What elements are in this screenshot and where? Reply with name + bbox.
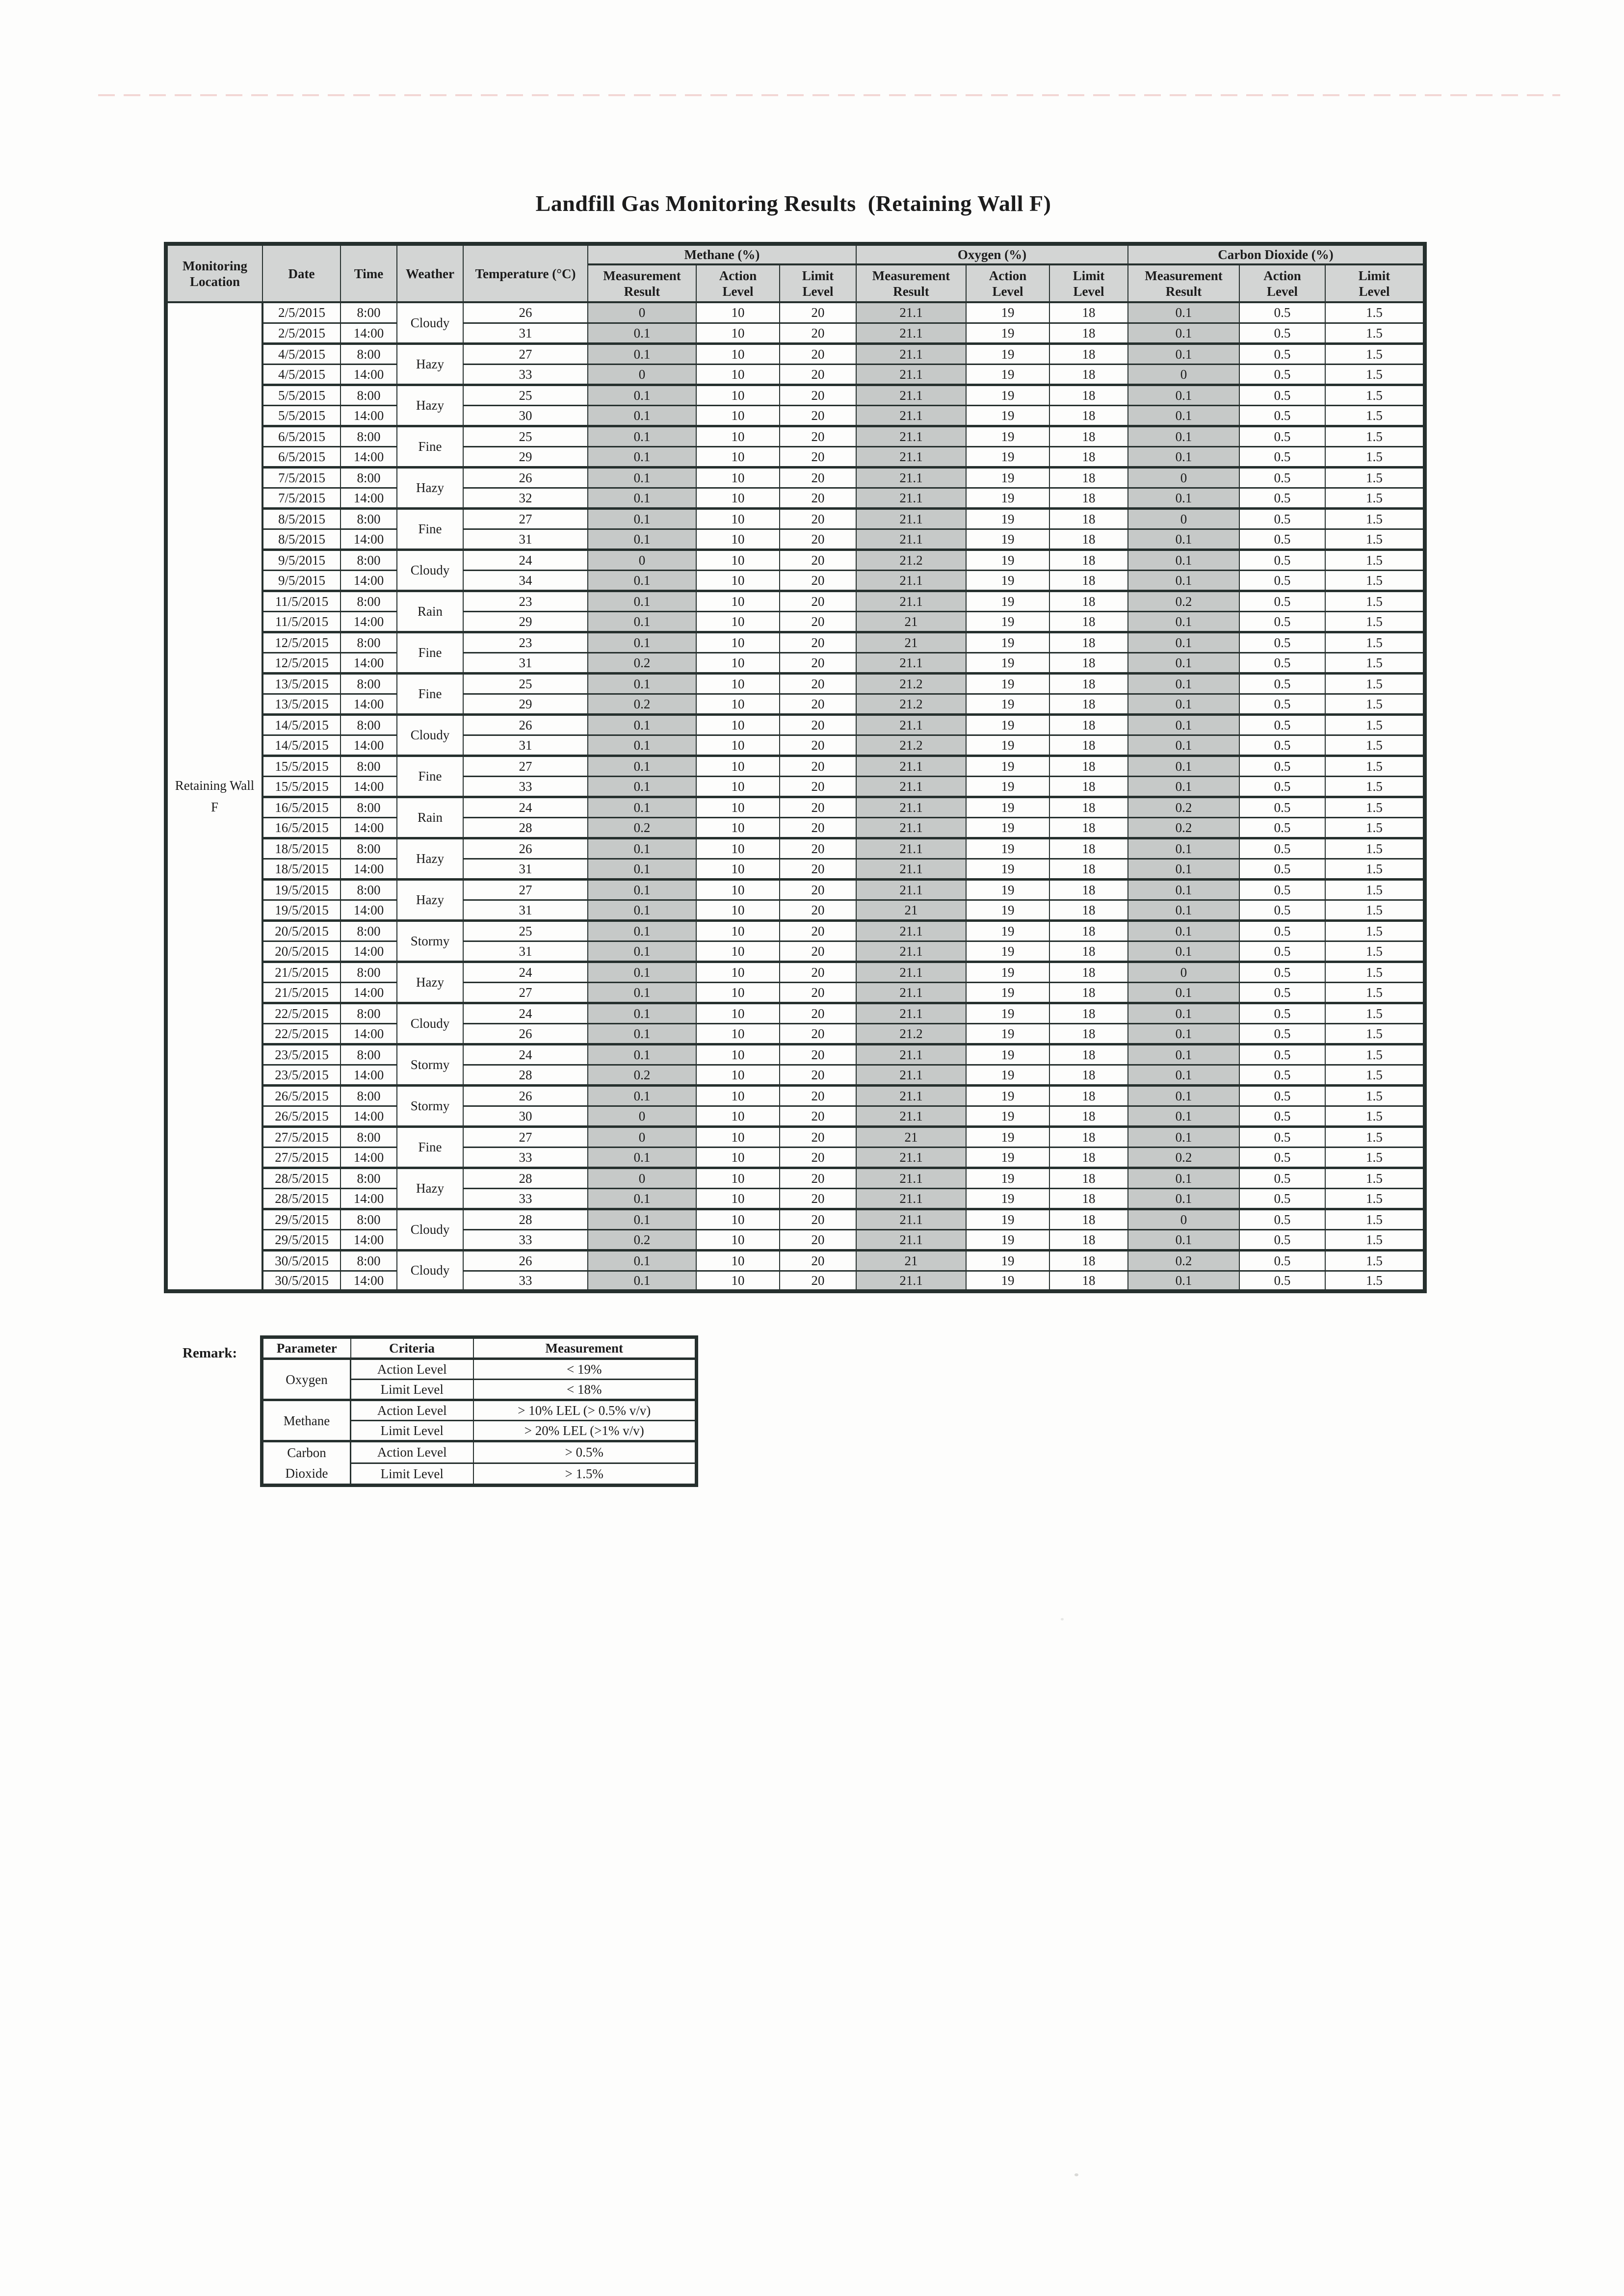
co2-action-cell: 0.5 [1239,529,1325,549]
methane-limit-cell: 20 [780,1044,856,1065]
co2-action-cell: 0.5 [1239,467,1325,488]
oxygen-limit-cell: 18 [1049,982,1128,1003]
methane-measurement-cell: 0 [588,1126,696,1147]
co2-action-cell: 0.5 [1239,694,1325,714]
temperature-cell: 27 [463,508,588,529]
temperature-cell: 23 [463,591,588,611]
temperature-cell: 31 [463,529,588,549]
date-cell: 9/5/2015 [262,549,341,570]
oxygen-action-cell: 19 [966,900,1049,920]
methane-action-cell: 10 [696,570,780,591]
table-row: 29/5/20158:00Cloudy280.1102021.1191800.5… [166,1209,1425,1229]
date-cell: 7/5/2015 [262,467,341,488]
oxygen-action-cell: 19 [966,1209,1049,1229]
weather-cell: Fine [397,756,463,797]
methane-measurement-cell: 0.1 [588,982,696,1003]
date-cell: 20/5/2015 [262,941,341,962]
temperature-cell: 24 [463,549,588,570]
co2-measurement-cell: 0.1 [1128,920,1239,941]
methane-action-cell: 10 [696,838,780,859]
co2-limit-cell: 1.5 [1325,900,1425,920]
oxygen-action-cell: 19 [966,735,1049,756]
table-row: 26/5/201514:00300102021.119180.10.51.5 [166,1106,1425,1126]
table-row: 30/5/201514:00330.1102021.119180.10.51.5 [166,1271,1425,1291]
co2-measurement-cell: 0.1 [1128,1168,1239,1188]
temperature-cell: 27 [463,1126,588,1147]
col-header-co2-limit: Limit Level [1325,264,1425,302]
methane-limit-cell: 20 [780,900,856,920]
methane-measurement-cell: 0 [588,1106,696,1126]
oxygen-limit-cell: 18 [1049,838,1128,859]
temperature-cell: 33 [463,1188,588,1209]
oxygen-limit-cell: 18 [1049,549,1128,570]
co2-limit-cell: 1.5 [1325,1023,1425,1044]
oxygen-limit-cell: 18 [1049,1147,1128,1168]
methane-action-cell: 10 [696,467,780,488]
co2-limit-cell: 1.5 [1325,1085,1425,1106]
methane-limit-cell: 20 [780,1085,856,1106]
oxygen-measurement-cell: 21.1 [856,591,966,611]
temperature-cell: 25 [463,426,588,446]
oxygen-action-cell: 19 [966,838,1049,859]
co2-measurement-cell: 0 [1128,467,1239,488]
oxygen-action-cell: 19 [966,446,1049,467]
date-cell: 8/5/2015 [262,508,341,529]
date-cell: 22/5/2015 [262,1023,341,1044]
methane-limit-cell: 20 [780,797,856,817]
oxygen-measurement-cell: 21.1 [856,446,966,467]
co2-measurement-cell: 0.2 [1128,591,1239,611]
time-cell: 8:00 [341,508,397,529]
co2-limit-cell: 1.5 [1325,735,1425,756]
methane-limit-cell: 20 [780,859,856,879]
methane-limit-cell: 20 [780,1106,856,1126]
table-row: 15/5/201514:00330.1102021.119180.10.51.5 [166,776,1425,797]
co2-limit-cell: 1.5 [1325,838,1425,859]
oxygen-action-cell: 19 [966,694,1049,714]
time-cell: 8:00 [341,632,397,652]
co2-limit-cell: 1.5 [1325,343,1425,364]
methane-limit-cell: 20 [780,467,856,488]
methane-limit-cell: 20 [780,652,856,673]
remark-measurement: > 1.5% [473,1463,697,1486]
oxygen-measurement-cell: 21.1 [856,879,966,900]
methane-action-cell: 10 [696,1023,780,1044]
methane-measurement-cell: 0.1 [588,714,696,735]
oxygen-action-cell: 19 [966,714,1049,735]
oxygen-limit-cell: 18 [1049,735,1128,756]
time-cell: 14:00 [341,446,397,467]
methane-action-cell: 10 [696,1044,780,1065]
time-cell: 14:00 [341,1271,397,1291]
temperature-cell: 24 [463,962,588,982]
methane-action-cell: 10 [696,1106,780,1126]
methane-limit-cell: 20 [780,694,856,714]
co2-limit-cell: 1.5 [1325,1188,1425,1209]
methane-measurement-cell: 0.1 [588,570,696,591]
oxygen-measurement-cell: 21.1 [856,652,966,673]
time-cell: 8:00 [341,343,397,364]
co2-measurement-cell: 0.1 [1128,570,1239,591]
methane-action-cell: 10 [696,900,780,920]
temperature-cell: 33 [463,364,588,385]
temperature-cell: 27 [463,756,588,776]
methane-measurement-cell: 0.1 [588,1271,696,1291]
weather-cell: Hazy [397,467,463,508]
date-cell: 7/5/2015 [262,488,341,508]
oxygen-measurement-cell: 21.1 [856,1106,966,1126]
co2-action-cell: 0.5 [1239,488,1325,508]
methane-measurement-cell: 0.1 [588,405,696,426]
oxygen-measurement-cell: 21.1 [856,570,966,591]
date-cell: 9/5/2015 [262,570,341,591]
table-row: 16/5/201514:00280.2102021.119180.20.51.5 [166,817,1425,838]
oxygen-measurement-cell: 21.1 [856,467,966,488]
table-row: 18/5/201514:00310.1102021.119180.10.51.5 [166,859,1425,879]
table-row: 4/5/201514:00330102021.1191800.51.5 [166,364,1425,385]
methane-limit-cell: 20 [780,941,856,962]
methane-action-cell: 10 [696,817,780,838]
oxygen-limit-cell: 18 [1049,1065,1128,1085]
oxygen-measurement-cell: 21 [856,1126,966,1147]
methane-measurement-cell: 0.1 [588,941,696,962]
table-row: 16/5/20158:00Rain240.1102021.119180.20.5… [166,797,1425,817]
table-row: 22/5/20158:00Cloudy240.1102021.119180.10… [166,1003,1425,1023]
table-row: 15/5/20158:00Fine270.1102021.119180.10.5… [166,756,1425,776]
oxygen-limit-cell: 18 [1049,1126,1128,1147]
co2-action-cell: 0.5 [1239,652,1325,673]
co2-measurement-cell: 0.1 [1128,1126,1239,1147]
oxygen-action-cell: 19 [966,673,1049,694]
co2-action-cell: 0.5 [1239,756,1325,776]
remark-measurement: > 10% LEL (> 0.5% v/v) [473,1400,697,1421]
methane-measurement-cell: 0.1 [588,446,696,467]
date-cell: 19/5/2015 [262,879,341,900]
time-cell: 14:00 [341,1147,397,1168]
weather-cell: Cloudy [397,714,463,756]
table-row: 27/5/201514:00330.1102021.119180.20.51.5 [166,1147,1425,1168]
temperature-cell: 26 [463,1250,588,1271]
oxygen-limit-cell: 18 [1049,323,1128,343]
co2-limit-cell: 1.5 [1325,1229,1425,1250]
co2-action-cell: 0.5 [1239,446,1325,467]
co2-limit-cell: 1.5 [1325,817,1425,838]
co2-limit-cell: 1.5 [1325,756,1425,776]
temperature-cell: 26 [463,302,588,323]
oxygen-action-cell: 19 [966,797,1049,817]
oxygen-limit-cell: 18 [1049,570,1128,591]
date-cell: 26/5/2015 [262,1085,341,1106]
time-cell: 14:00 [341,941,397,962]
date-cell: 11/5/2015 [262,611,341,632]
remark-criteria: Limit Level [351,1463,473,1486]
methane-measurement-cell: 0.1 [588,323,696,343]
methane-action-cell: 10 [696,1229,780,1250]
oxygen-limit-cell: 18 [1049,405,1128,426]
table-row: 28/5/201514:00330.1102021.119180.10.51.5 [166,1188,1425,1209]
co2-action-cell: 0.5 [1239,920,1325,941]
weather-cell: Hazy [397,838,463,879]
oxygen-action-cell: 19 [966,1250,1049,1271]
remark-criteria: Limit Level [351,1421,473,1441]
oxygen-action-cell: 19 [966,343,1049,364]
oxygen-action-cell: 19 [966,385,1049,405]
oxygen-limit-cell: 18 [1049,756,1128,776]
oxygen-measurement-cell: 21.1 [856,343,966,364]
col-header-temperature: Temperature (°C) [463,244,588,302]
methane-action-cell: 10 [696,426,780,446]
oxygen-measurement-cell: 21.1 [856,1188,966,1209]
methane-measurement-cell: 0 [588,364,696,385]
time-cell: 8:00 [341,591,397,611]
oxygen-limit-cell: 18 [1049,900,1128,920]
methane-action-cell: 10 [696,859,780,879]
oxygen-action-cell: 19 [966,426,1049,446]
oxygen-action-cell: 19 [966,1065,1049,1085]
methane-limit-cell: 20 [780,632,856,652]
oxygen-limit-cell: 18 [1049,488,1128,508]
date-cell: 14/5/2015 [262,735,341,756]
methane-action-cell: 10 [696,673,780,694]
oxygen-limit-cell: 18 [1049,1229,1128,1250]
date-cell: 28/5/2015 [262,1168,341,1188]
oxygen-action-cell: 19 [966,1147,1049,1168]
table-row: Retaining Wall F2/5/20158:00Cloudy260102… [166,302,1425,323]
time-cell: 8:00 [341,714,397,735]
temperature-cell: 24 [463,797,588,817]
methane-action-cell: 10 [696,1188,780,1209]
co2-limit-cell: 1.5 [1325,920,1425,941]
oxygen-measurement-cell: 21.2 [856,673,966,694]
oxygen-limit-cell: 18 [1049,426,1128,446]
date-cell: 8/5/2015 [262,529,341,549]
table-row: 18/5/20158:00Hazy260.1102021.119180.10.5… [166,838,1425,859]
time-cell: 8:00 [341,549,397,570]
date-cell: 26/5/2015 [262,1106,341,1126]
temperature-cell: 34 [463,570,588,591]
oxygen-measurement-cell: 21.2 [856,1023,966,1044]
co2-action-cell: 0.5 [1239,364,1325,385]
methane-action-cell: 10 [696,962,780,982]
methane-measurement-cell: 0.1 [588,1023,696,1044]
table-row: 20/5/201514:00310.1102021.119180.10.51.5 [166,941,1425,962]
methane-measurement-cell: 0.1 [588,735,696,756]
oxygen-measurement-cell: 21.1 [856,859,966,879]
weather-cell: Rain [397,591,463,632]
weather-cell: Fine [397,673,463,714]
co2-measurement-cell: 0.1 [1128,1003,1239,1023]
methane-limit-cell: 20 [780,1168,856,1188]
weather-cell: Cloudy [397,302,463,343]
co2-measurement-cell: 0.1 [1128,405,1239,426]
remark-criteria: Action Level [351,1441,473,1463]
temperature-cell: 26 [463,1023,588,1044]
methane-limit-cell: 20 [780,1147,856,1168]
oxygen-measurement-cell: 21 [856,611,966,632]
temperature-cell: 27 [463,343,588,364]
oxygen-measurement-cell: 21.1 [856,1003,966,1023]
oxygen-limit-cell: 18 [1049,776,1128,797]
co2-action-cell: 0.5 [1239,879,1325,900]
scan-artifact-line [98,94,1560,96]
time-cell: 8:00 [341,920,397,941]
co2-action-cell: 0.5 [1239,632,1325,652]
weather-cell: Hazy [397,1168,463,1209]
co2-action-cell: 0.5 [1239,1209,1325,1229]
temperature-cell: 30 [463,1106,588,1126]
methane-action-cell: 10 [696,385,780,405]
methane-action-cell: 10 [696,508,780,529]
co2-measurement-cell: 0.1 [1128,1085,1239,1106]
remark-criteria: Action Level [351,1359,473,1380]
table-row: 21/5/201514:00270.1102021.119180.10.51.5 [166,982,1425,1003]
methane-measurement-cell: 0.1 [588,1209,696,1229]
temperature-cell: 24 [463,1044,588,1065]
methane-limit-cell: 20 [780,591,856,611]
co2-measurement-cell: 0.1 [1128,714,1239,735]
methane-measurement-cell: 0.1 [588,1188,696,1209]
table-row: 11/5/20158:00Rain230.1102021.119180.20.5… [166,591,1425,611]
oxygen-action-cell: 19 [966,611,1049,632]
oxygen-action-cell: 19 [966,1271,1049,1291]
temperature-cell: 33 [463,1147,588,1168]
methane-measurement-cell: 0 [588,302,696,323]
table-row: 13/5/20158:00Fine250.1102021.219180.10.5… [166,673,1425,694]
co2-measurement-cell: 0.1 [1128,735,1239,756]
date-cell: 18/5/2015 [262,859,341,879]
time-cell: 8:00 [341,1003,397,1023]
co2-limit-cell: 1.5 [1325,364,1425,385]
methane-action-cell: 10 [696,488,780,508]
methane-action-cell: 10 [696,797,780,817]
oxygen-measurement-cell: 21.1 [856,941,966,962]
date-cell: 21/5/2015 [262,962,341,982]
co2-action-cell: 0.5 [1239,508,1325,529]
table-row: 26/5/20158:00Stormy260.1102021.119180.10… [166,1085,1425,1106]
methane-measurement-cell: 0.1 [588,962,696,982]
col-header-time: Time [341,244,397,302]
methane-limit-cell: 20 [780,735,856,756]
temperature-cell: 31 [463,735,588,756]
temperature-cell: 31 [463,323,588,343]
oxygen-limit-cell: 18 [1049,879,1128,900]
temperature-cell: 31 [463,859,588,879]
weather-cell: Fine [397,1126,463,1168]
date-cell: 29/5/2015 [262,1209,341,1229]
methane-limit-cell: 20 [780,920,856,941]
table-row: 23/5/20158:00Stormy240.1102021.119180.10… [166,1044,1425,1065]
co2-measurement-cell: 0.1 [1128,1044,1239,1065]
co2-measurement-cell: 0.1 [1128,652,1239,673]
weather-cell: Hazy [397,962,463,1003]
methane-action-cell: 10 [696,405,780,426]
methane-measurement-cell: 0.1 [588,879,696,900]
oxygen-measurement-cell: 21.1 [856,817,966,838]
oxygen-measurement-cell: 21.1 [856,508,966,529]
co2-action-cell: 0.5 [1239,385,1325,405]
oxygen-measurement-cell: 21.1 [856,797,966,817]
date-cell: 18/5/2015 [262,838,341,859]
co2-measurement-cell: 0.2 [1128,817,1239,838]
co2-action-cell: 0.5 [1239,1126,1325,1147]
co2-measurement-cell: 0.1 [1128,611,1239,632]
co2-measurement-cell: 0.1 [1128,343,1239,364]
methane-limit-cell: 20 [780,982,856,1003]
time-cell: 14:00 [341,982,397,1003]
temperature-cell: 26 [463,1085,588,1106]
co2-measurement-cell: 0.1 [1128,488,1239,508]
oxygen-measurement-cell: 21.1 [856,1065,966,1085]
methane-limit-cell: 20 [780,673,856,694]
co2-action-cell: 0.5 [1239,1023,1325,1044]
col-header-methane-limit: Limit Level [780,264,856,302]
methane-action-cell: 10 [696,1271,780,1291]
co2-action-cell: 0.5 [1239,776,1325,797]
co2-limit-cell: 1.5 [1325,611,1425,632]
methane-action-cell: 10 [696,364,780,385]
oxygen-limit-cell: 18 [1049,1250,1128,1271]
date-cell: 5/5/2015 [262,385,341,405]
co2-measurement-cell: 0.1 [1128,879,1239,900]
co2-action-cell: 0.5 [1239,611,1325,632]
methane-action-cell: 10 [696,982,780,1003]
methane-action-cell: 10 [696,879,780,900]
methane-measurement-cell: 0.1 [588,859,696,879]
co2-action-cell: 0.5 [1239,1044,1325,1065]
time-cell: 14:00 [341,570,397,591]
methane-limit-cell: 20 [780,343,856,364]
oxygen-limit-cell: 18 [1049,920,1128,941]
oxygen-limit-cell: 18 [1049,302,1128,323]
table-row: 20/5/20158:00Stormy250.1102021.119180.10… [166,920,1425,941]
remark-table: Parameter Criteria Measurement Oxygen Ac… [260,1335,698,1487]
methane-limit-cell: 20 [780,426,856,446]
co2-measurement-cell: 0.1 [1128,426,1239,446]
methane-action-cell: 10 [696,1126,780,1147]
methane-measurement-cell: 0.1 [588,467,696,488]
time-cell: 8:00 [341,426,397,446]
methane-action-cell: 10 [696,529,780,549]
col-header-co2-action: Action Level [1239,264,1325,302]
oxygen-measurement-cell: 21.1 [856,1147,966,1168]
co2-limit-cell: 1.5 [1325,797,1425,817]
date-cell: 19/5/2015 [262,900,341,920]
co2-action-cell: 0.5 [1239,1085,1325,1106]
co2-action-cell: 0.5 [1239,302,1325,323]
methane-measurement-cell: 0.1 [588,797,696,817]
date-cell: 4/5/2015 [262,343,341,364]
co2-measurement-cell: 0.1 [1128,1188,1239,1209]
date-cell: 20/5/2015 [262,920,341,941]
oxygen-limit-cell: 18 [1049,714,1128,735]
co2-limit-cell: 1.5 [1325,859,1425,879]
col-header-monitoring-location: Monitoring Location [166,244,262,302]
co2-measurement-cell: 0.1 [1128,1023,1239,1044]
co2-measurement-cell: 0.1 [1128,385,1239,405]
monitoring-table-body: Retaining Wall F2/5/20158:00Cloudy260102… [166,302,1425,1291]
co2-action-cell: 0.5 [1239,735,1325,756]
table-row: 11/5/201514:00290.110202119180.10.51.5 [166,611,1425,632]
co2-measurement-cell: 0.1 [1128,549,1239,570]
oxygen-action-cell: 19 [966,1188,1049,1209]
col-header-date: Date [262,244,341,302]
co2-action-cell: 0.5 [1239,1229,1325,1250]
methane-action-cell: 10 [696,1085,780,1106]
remark-row: Methane Action Level > 10% LEL (> 0.5% v… [262,1400,697,1421]
remark-label: Remark: [183,1345,237,1361]
time-cell: 14:00 [341,1023,397,1044]
oxygen-measurement-cell: 21.1 [856,1271,966,1291]
